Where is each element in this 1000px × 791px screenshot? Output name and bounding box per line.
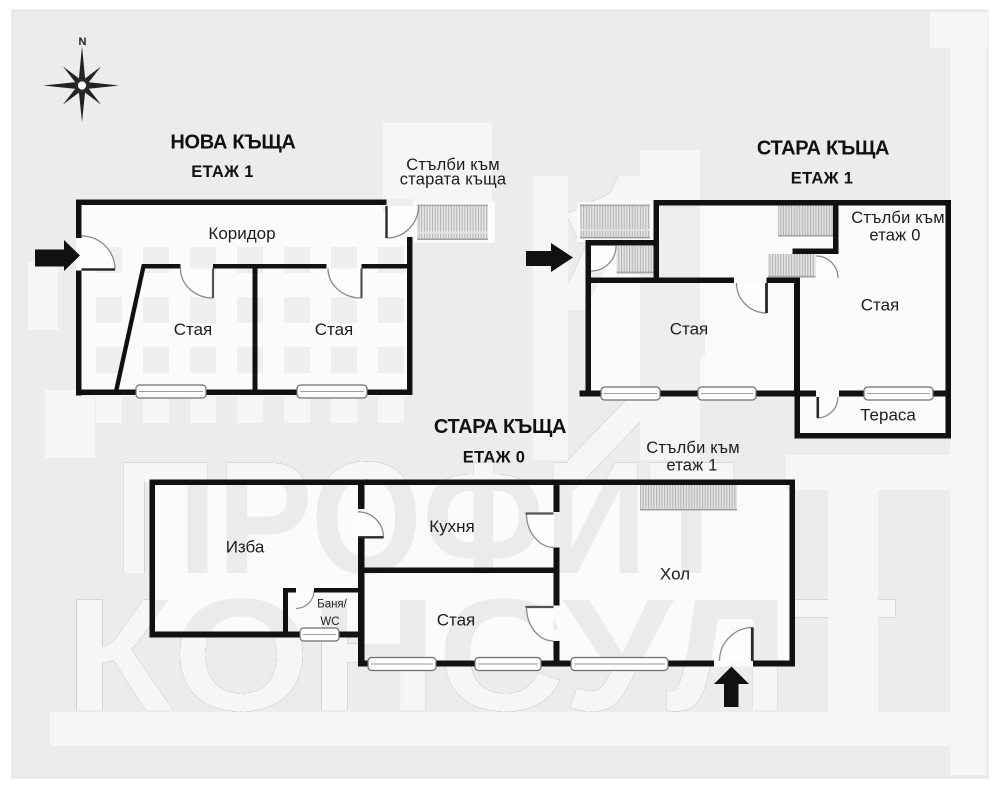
svg-text:СТАРА КЪЩА: СТАРА КЪЩА [757,138,889,160]
svg-text:НОВА КЪЩА: НОВА КЪЩА [170,132,295,154]
svg-text:Стая: Стая [670,320,709,339]
svg-text:етаж 0: етаж 0 [869,227,920,245]
svg-text:Стълби към: Стълби към [851,209,945,227]
svg-text:ЕТАЖ 0: ЕТАЖ 0 [463,449,525,467]
svg-text:ЕТАЖ 1: ЕТАЖ 1 [191,163,253,181]
svg-text:Стая: Стая [315,320,354,339]
svg-text:Стая: Стая [437,611,476,630]
svg-text:WC: WC [320,616,339,628]
svg-text:Тераса: Тераса [860,406,916,425]
svg-text:Изба: Изба [226,538,265,557]
svg-text:старата къща: старата къща [400,171,507,189]
svg-text:етаж 1: етаж 1 [666,457,717,475]
svg-text:ЕТАЖ 1: ЕТАЖ 1 [791,170,853,188]
svg-text:Хол: Хол [660,565,690,584]
svg-text:Баня/: Баня/ [317,599,348,611]
svg-text:Коридор: Коридор [208,224,275,243]
svg-text:Кухня: Кухня [429,517,475,536]
svg-text:Стая: Стая [174,320,213,339]
svg-text:N: N [79,36,87,48]
svg-text:Стълби към: Стълби към [646,439,740,457]
svg-text:СТАРА КЪЩА: СТАРА КЪЩА [434,416,566,438]
svg-text:Стая: Стая [861,296,900,315]
